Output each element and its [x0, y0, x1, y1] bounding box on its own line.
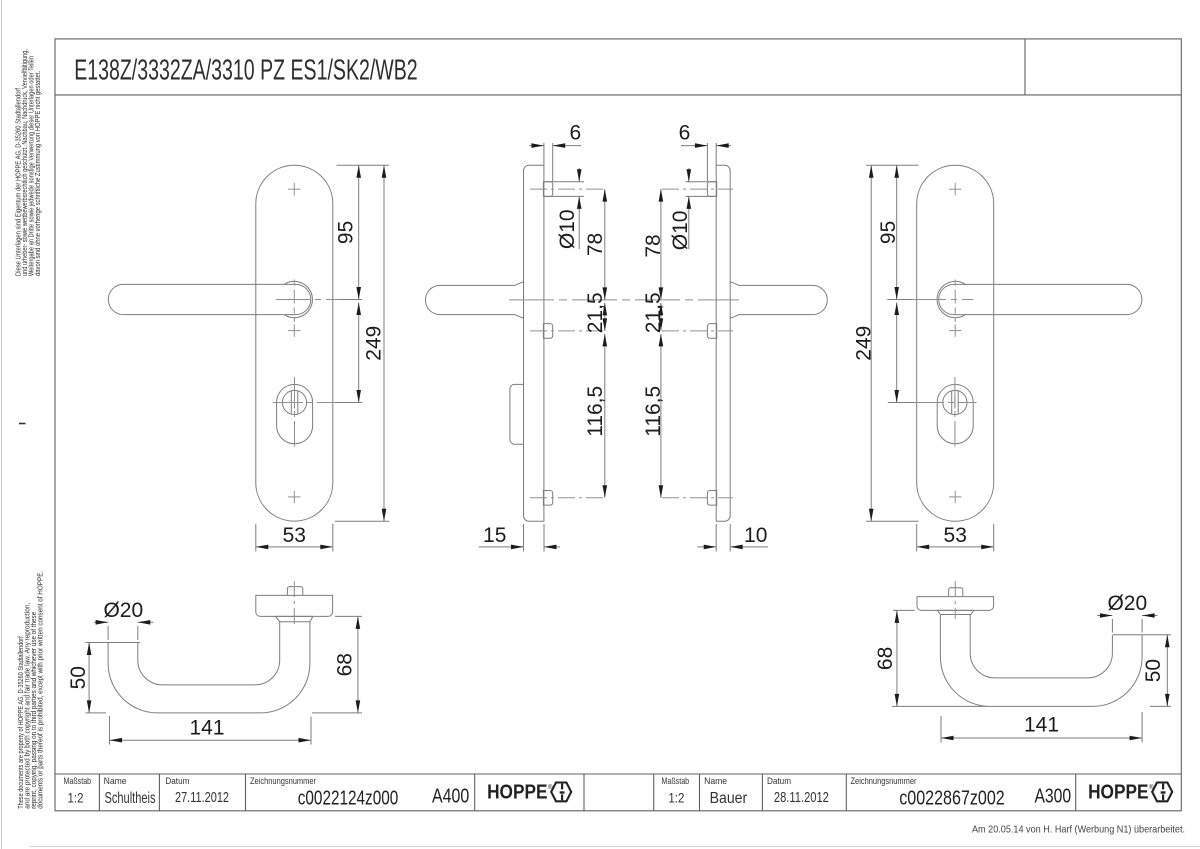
svg-text:A400: A400 — [432, 785, 469, 807]
svg-text:Ø10: Ø10 — [556, 209, 579, 249]
svg-text:davon sind ohne vorherige schr: davon sind ohne vorherige schriftliche Z… — [33, 71, 42, 276]
svg-text:141: 141 — [1024, 714, 1059, 737]
svg-text:c0022867z002: c0022867z002 — [899, 786, 1005, 809]
svg-text:Ø20: Ø20 — [1107, 592, 1147, 615]
svg-text:HOPPE: HOPPE — [487, 782, 547, 804]
svg-text:Datum: Datum — [165, 776, 189, 786]
svg-text:78: 78 — [584, 233, 607, 256]
svg-text:53: 53 — [944, 524, 967, 547]
svg-text:27.11.2012: 27.11.2012 — [175, 789, 229, 806]
svg-text:21,5: 21,5 — [584, 292, 607, 333]
svg-text:6: 6 — [569, 121, 581, 144]
svg-text:78: 78 — [642, 234, 665, 257]
svg-text:Zeichnungsnummer: Zeichnungsnummer — [250, 776, 316, 786]
svg-text:10: 10 — [744, 524, 767, 547]
svg-text:141: 141 — [189, 716, 224, 739]
svg-text:68: 68 — [874, 647, 897, 670]
svg-text:Am 20.05.14 von H. Harf (Werbu: Am 20.05.14 von H. Harf (Werbung N1) übe… — [972, 825, 1185, 836]
svg-text:249: 249 — [363, 326, 386, 361]
svg-text:50: 50 — [67, 666, 90, 689]
svg-text:116,5: 116,5 — [584, 386, 607, 437]
svg-text:A300: A300 — [1034, 785, 1071, 807]
svg-text:21,5: 21,5 — [642, 292, 665, 333]
svg-text:15: 15 — [483, 524, 506, 547]
svg-text:6: 6 — [679, 121, 691, 144]
svg-text:Maßstab: Maßstab — [64, 776, 92, 786]
svg-text:HOPPE: HOPPE — [1088, 782, 1148, 804]
svg-text:95: 95 — [335, 221, 358, 244]
svg-text:Datum: Datum — [767, 776, 791, 786]
svg-text:249: 249 — [853, 326, 876, 361]
svg-text:28.11.2012: 28.11.2012 — [774, 789, 829, 806]
svg-text:53: 53 — [283, 524, 306, 547]
svg-text:Name: Name — [104, 776, 127, 786]
svg-text:116,5: 116,5 — [642, 386, 665, 437]
svg-text:Bauer: Bauer — [710, 790, 748, 807]
svg-text:Maßstab: Maßstab — [662, 776, 690, 786]
svg-text:Name: Name — [704, 776, 727, 786]
svg-text:50: 50 — [1142, 659, 1165, 682]
svg-text:1:2: 1:2 — [668, 790, 684, 806]
svg-text:E138Z/3332ZA/3310 PZ ES1/SK2/W: E138Z/3332ZA/3310 PZ ES1/SK2/WB2 — [74, 55, 418, 87]
svg-text:95: 95 — [877, 221, 900, 244]
svg-text:documents or parts thereof is: documents or parts thereof is prohibited… — [35, 571, 44, 809]
svg-text:c0022124z000: c0022124z000 — [298, 786, 399, 809]
svg-text:Ø10: Ø10 — [669, 211, 692, 251]
svg-text:Ø20: Ø20 — [103, 599, 143, 622]
svg-text:Schultheis: Schultheis — [105, 790, 156, 807]
svg-text:Zeichnungsnummer: Zeichnungsnummer — [851, 776, 917, 786]
svg-text:1:2: 1:2 — [68, 790, 84, 806]
svg-text:68: 68 — [334, 653, 357, 676]
